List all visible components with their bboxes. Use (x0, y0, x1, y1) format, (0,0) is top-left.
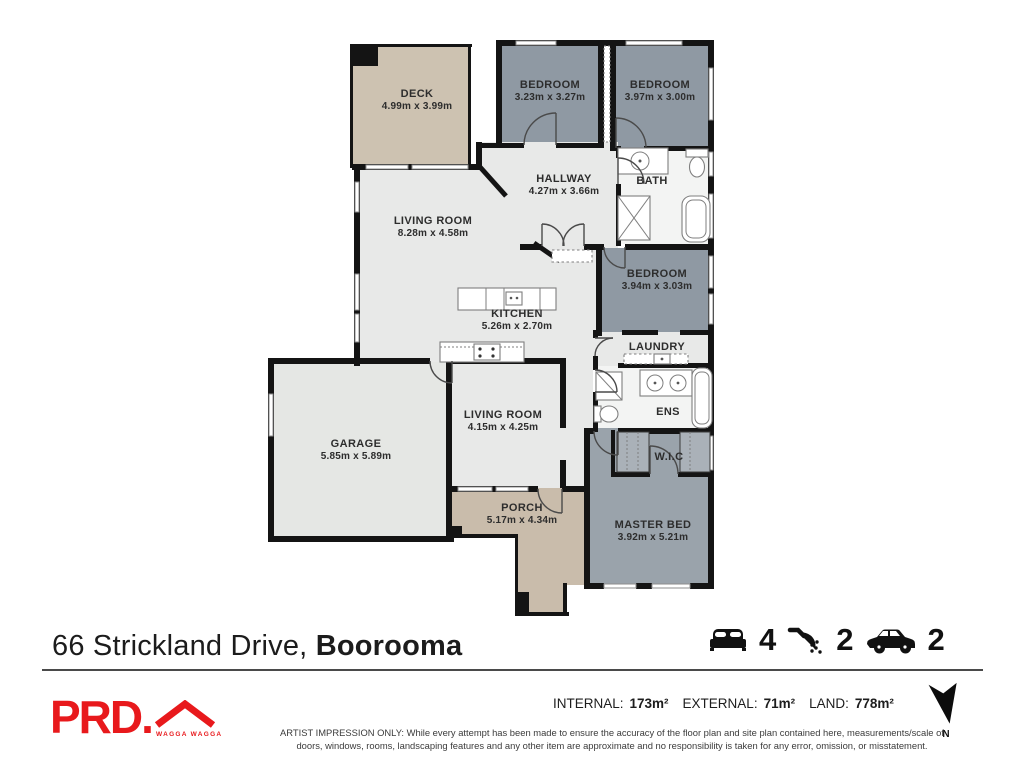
north-arrow-icon (924, 680, 968, 726)
kitchen-counter (458, 288, 556, 310)
internal-value: 173m² (630, 696, 669, 711)
address-suburb: Boorooma (316, 630, 463, 662)
stove-icon (474, 344, 500, 360)
bed-count: 4 (759, 624, 776, 655)
room-label-garage: GARAGE5.85m x 5.89m (296, 438, 416, 462)
room-label-bedroom3: BEDROOM3.94m x 3.03m (603, 268, 711, 292)
divider-line (42, 669, 983, 671)
room-label-master: MASTER BED3.92m x 5.21m (593, 519, 713, 543)
external-value: 71m² (764, 696, 796, 711)
roof-icon (154, 700, 216, 728)
land-value: 778m² (855, 696, 894, 711)
room-label-kitchen: KITCHEN5.26m x 2.70m (457, 308, 577, 332)
room-label-ens: ENS (638, 406, 698, 418)
address-street: 66 Strickland Drive, (52, 630, 307, 662)
room-fill-porch-ext (517, 538, 590, 585)
toilet-icon (686, 149, 708, 157)
room-label-wic: W.I.C (639, 451, 699, 463)
kitchen-island (440, 342, 524, 362)
external-label: EXTERNAL: (683, 696, 758, 711)
disclaimer: ARTIST IMPRESSION ONLY: While every atte… (240, 727, 984, 752)
room-label-deck: DECK4.99m x 3.99m (357, 88, 477, 112)
disclaimer-line2: doors, windows, rooms, landscaping featu… (240, 740, 984, 753)
logo-location: WAGGA WAGGA (156, 731, 222, 738)
area-summary: INTERNAL: 173m² EXTERNAL: 71m² LAND: 778… (553, 696, 902, 711)
room-label-bath: BATH (617, 175, 687, 187)
car-count: 2 (928, 624, 945, 655)
bed-icon (708, 626, 748, 652)
room-label-living2: LIVING ROOM4.15m x 4.25m (443, 409, 563, 433)
room-label-living1: LIVING ROOM8.28m x 4.58m (373, 215, 493, 239)
room-label-laundry: LAUNDRY (612, 341, 702, 353)
room-label-bedroom1: BEDROOM3.23m x 3.27m (500, 79, 600, 103)
room-label-porch: PORCH5.17m x 4.34m (462, 502, 582, 526)
ens-vanity-icon (640, 370, 692, 396)
floorplan-page: DECK4.99m x 3.99m BEDROOM3.23m x 3.27m B… (0, 0, 1024, 768)
internal-label: INTERNAL: (553, 696, 624, 711)
car-icon (865, 624, 917, 654)
room-label-hallway: HALLWAY4.27m x 3.66m (504, 173, 624, 197)
laundry-fixtures (624, 354, 688, 364)
shower-count: 2 (836, 624, 853, 655)
disclaimer-line1: ARTIST IMPRESSION ONLY: While every atte… (240, 727, 984, 740)
property-address: 66 Strickland Drive, Boorooma (52, 630, 462, 663)
agency-logo: PRD. WAGGA WAGGA (50, 694, 152, 740)
shower-icon (787, 623, 825, 655)
features-summary: 4 2 2 (708, 623, 945, 655)
sink-icon (506, 292, 522, 305)
vanity-icon (618, 148, 668, 174)
room-label-bedroom2: BEDROOM3.97m x 3.00m (609, 79, 711, 103)
land-label: LAND: (809, 696, 849, 711)
logo-text: PRD. (50, 691, 152, 743)
entry-bench (552, 250, 592, 262)
